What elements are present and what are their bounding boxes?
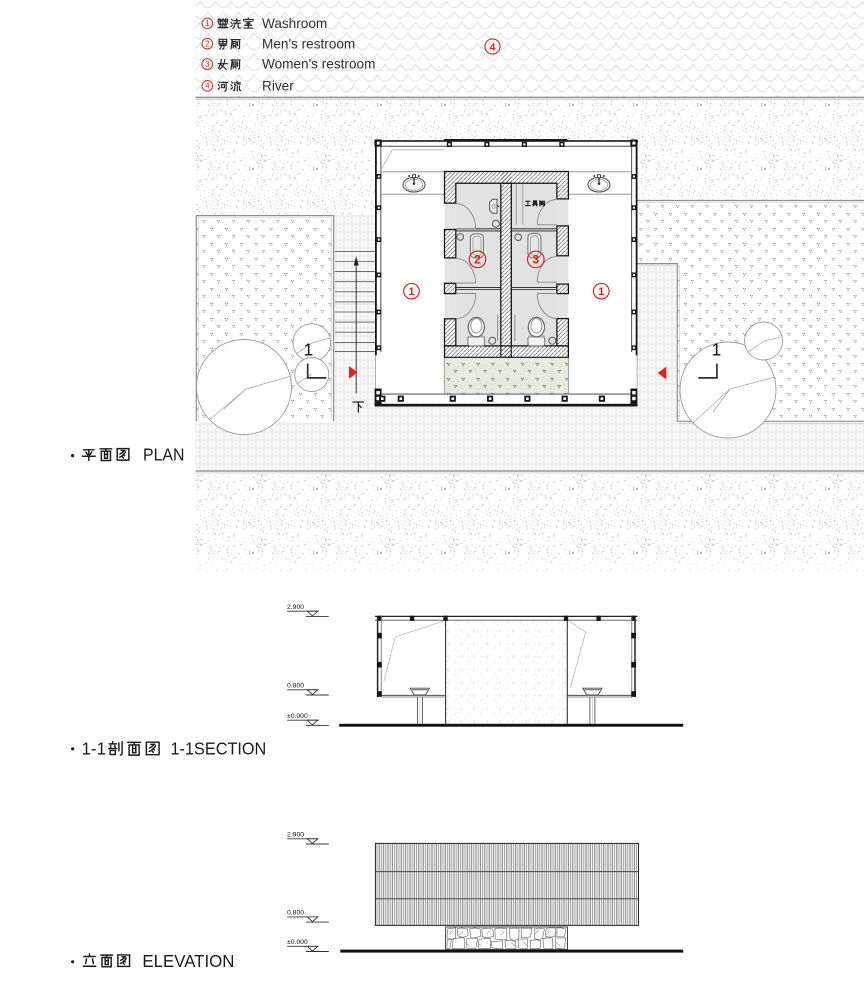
svg-text:0.800: 0.800 <box>287 683 304 690</box>
svg-text:Women's restroom: Women's restroom <box>262 57 375 72</box>
svg-text:3: 3 <box>205 60 210 69</box>
svg-text:River: River <box>262 78 294 93</box>
svg-text:1: 1 <box>598 286 604 298</box>
svg-text:0.800: 0.800 <box>287 910 304 917</box>
svg-text:2: 2 <box>474 253 481 267</box>
svg-text:ELEVATION: ELEVATION <box>142 951 234 971</box>
svg-text:3: 3 <box>532 253 539 267</box>
svg-text:Washroom: Washroom <box>262 16 327 31</box>
svg-text:PLAN: PLAN <box>143 445 185 465</box>
svg-text:4: 4 <box>205 82 210 91</box>
svg-text:1: 1 <box>205 19 210 28</box>
svg-text:1: 1 <box>712 340 722 360</box>
svg-text:1: 1 <box>408 286 414 298</box>
svg-text:±0.000: ±0.000 <box>287 939 308 946</box>
svg-text:2.900: 2.900 <box>287 832 304 839</box>
svg-text:4: 4 <box>490 42 496 54</box>
svg-text:Men's restroom: Men's restroom <box>262 36 355 51</box>
svg-text:1-1SECTION: 1-1SECTION <box>171 738 267 758</box>
svg-text:2.900: 2.900 <box>287 604 304 611</box>
svg-text:1: 1 <box>304 340 314 360</box>
svg-text:2: 2 <box>205 40 210 49</box>
svg-text:±0.000: ±0.000 <box>287 713 308 720</box>
svg-text:1-1: 1-1 <box>82 738 107 758</box>
